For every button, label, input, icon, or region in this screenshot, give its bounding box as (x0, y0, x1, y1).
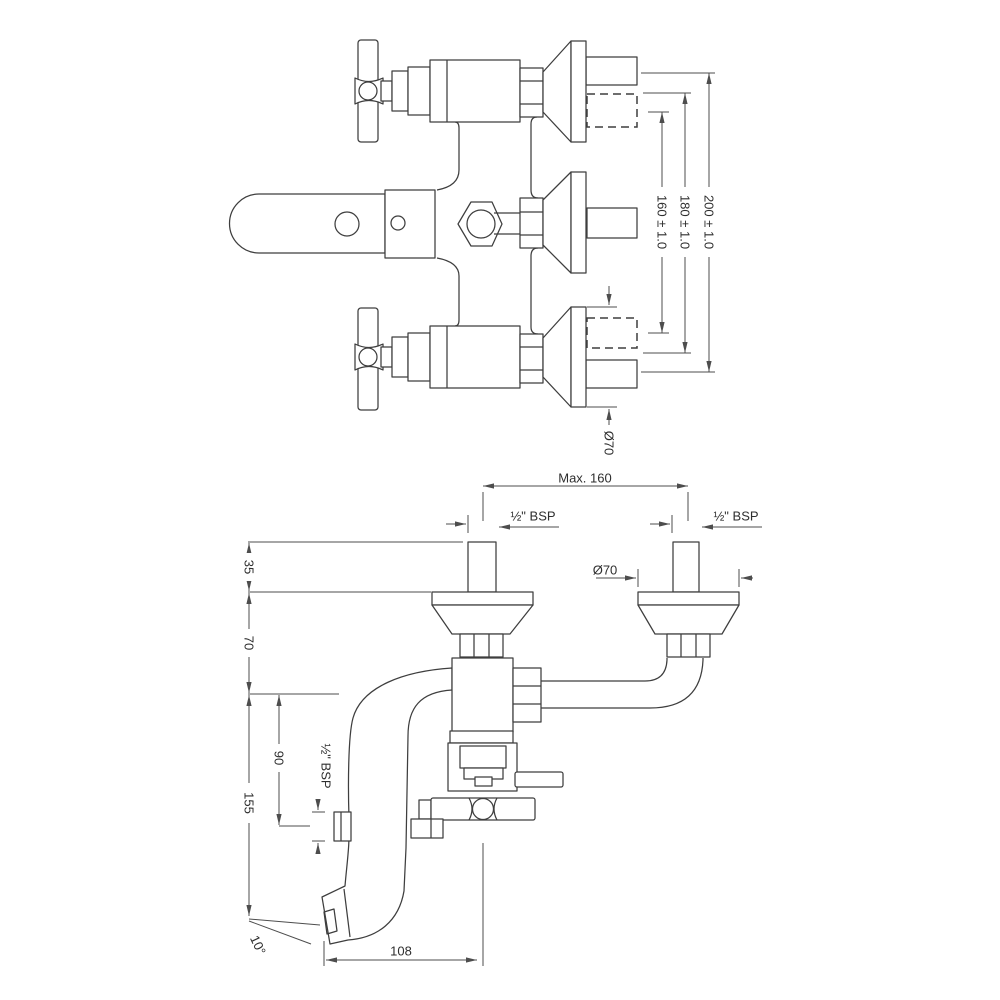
dim-70-label: 70 (242, 636, 257, 650)
valve-body (430, 326, 520, 388)
left-flange-plate (432, 592, 533, 605)
center-pipe (587, 208, 637, 238)
hex-nut (520, 334, 543, 383)
dim-90-label: 90 (272, 751, 287, 765)
dim-108-label: 108 (390, 944, 412, 959)
plan-flange-diameter-label: Ø70 (602, 431, 617, 456)
left-thread-label: ½" BSP (510, 509, 555, 524)
left-flange-cone (432, 605, 533, 634)
spout-base-block (385, 190, 435, 258)
plan-dimensions: 160 ± 1.0 180 ± 1.0 200 ± 1.0 (587, 73, 717, 461)
cold-valve-assembly (355, 307, 637, 410)
knob-front-arm (411, 819, 443, 838)
wall-flange-rim (571, 172, 586, 273)
right-flange-plate (638, 592, 739, 605)
handle-hub-screw (359, 82, 377, 100)
inlet-pipe (586, 57, 637, 85)
left-leg-pipe (468, 542, 496, 592)
wall-flange-rim (571, 41, 586, 142)
wall-flange-cone (543, 172, 571, 273)
shower-outlet-boss (334, 812, 351, 841)
dim-155-label: 155 (242, 792, 257, 814)
mixer-body (452, 658, 513, 732)
dim-35-label: 35 (242, 560, 257, 574)
inlet-pipe (586, 360, 637, 388)
bath-mixer-drawing: 160 ± 1.0 180 ± 1.0 200 ± 1.0 (0, 0, 1000, 1000)
right-flange-cone (638, 605, 739, 634)
hex-nut (520, 198, 543, 248)
dim-160-label: 160 ± 1.0 (655, 195, 670, 249)
right-flange-hex (667, 634, 710, 657)
knob-hub (473, 799, 494, 820)
plan-view: 160 ± 1.0 180 ± 1.0 200 ± 1.0 (230, 40, 718, 461)
diverter-lever (515, 772, 563, 787)
inlet-pipe-alt-position (587, 94, 637, 127)
outlet-thread-label: ½" BSP (319, 743, 334, 788)
wall-flange-cone (543, 41, 571, 142)
dim-180-label: 180 ± 1.0 (678, 195, 693, 249)
body-coupling-hex (513, 668, 541, 722)
spout-angle-label: 10° (247, 933, 269, 957)
dim-200-label: 200 ± 1.0 (702, 195, 717, 249)
knob-arm-end (419, 800, 431, 819)
max-spread-label: Max. 160 (558, 471, 611, 486)
technical-drawing-page: 160 ± 1.0 180 ± 1.0 200 ± 1.0 (0, 0, 1000, 1000)
spout-assembly (230, 172, 638, 273)
wall-flange-cone (543, 307, 571, 407)
hex-nut (520, 68, 543, 117)
bent-tube-outer (541, 658, 703, 708)
elevation-fitting (322, 542, 739, 944)
handle-hub-screw (359, 348, 377, 366)
left-flange-hex (460, 634, 503, 657)
right-leg-pipe (673, 542, 699, 592)
elevation-flange-diameter-label: Ø70 (593, 563, 618, 578)
inlet-pipe-alt-position (587, 318, 637, 348)
wall-flange-rim (571, 307, 586, 407)
right-thread-label: ½" BSP (713, 509, 758, 524)
elevation-view: Max. 160 ½" BSP ½" BSP Ø70 (241, 471, 762, 967)
body-base-plate (450, 731, 513, 743)
diverter-knob (467, 210, 495, 238)
spout-plan (230, 194, 386, 253)
bent-tube-inner (541, 658, 667, 681)
valve-body (430, 60, 520, 122)
hot-valve-assembly (355, 40, 637, 142)
